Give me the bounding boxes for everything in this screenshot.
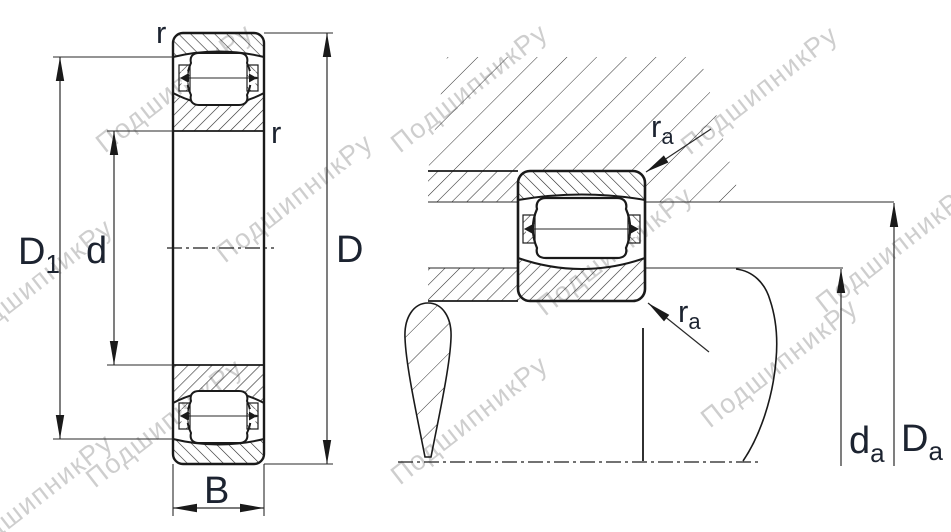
watermark: ПодшипникРу xyxy=(810,177,951,318)
arrowhead-down xyxy=(110,341,118,365)
left-view-bearing-section xyxy=(167,33,274,464)
arrowhead-up xyxy=(323,33,331,57)
arrowhead-ra-bottom xyxy=(645,300,669,322)
label-da-sub: a xyxy=(870,438,885,468)
label-D1-main: D xyxy=(18,231,45,273)
watermark: ПодшипникРу xyxy=(695,292,864,433)
cage-top-right xyxy=(247,65,258,91)
arrowhead-up xyxy=(56,57,64,81)
cage-right-view-right xyxy=(628,215,640,243)
label-Da-sub: a xyxy=(928,436,943,466)
label-da-main: d xyxy=(849,420,870,462)
housing-shoulder xyxy=(428,171,518,202)
label-D1: D1 xyxy=(18,231,60,279)
arrowhead-right xyxy=(240,504,264,512)
barrel-roller-top xyxy=(187,53,251,105)
label-ra-top-main: r xyxy=(651,109,661,144)
cage-bottom-left xyxy=(179,403,190,429)
cage-top-left xyxy=(179,65,190,91)
cage-bottom-right xyxy=(247,403,258,429)
label-ra-bottom-main: r xyxy=(678,294,688,329)
label-da: da xyxy=(849,420,885,468)
label-Da: Da xyxy=(901,418,943,466)
arrowhead-Da xyxy=(890,203,898,227)
arrowhead-left xyxy=(173,504,197,512)
label-d: d xyxy=(86,230,107,272)
arrowhead-down xyxy=(56,415,64,439)
barrel-roller-bottom xyxy=(187,391,251,443)
outer-ring-right xyxy=(518,171,645,200)
cage-right-view-left xyxy=(523,215,535,243)
label-ra-bottom-sub: a xyxy=(688,309,701,334)
label-ra-bottom: ra xyxy=(678,294,701,334)
arrowhead-down xyxy=(323,440,331,464)
label-B: B xyxy=(204,470,229,512)
technical-drawing-page: ПодшипникРу ПодшипникРу ПодшипникРу Подш… xyxy=(0,0,951,532)
label-D1-sub: 1 xyxy=(45,249,59,279)
label-Da-main: D xyxy=(901,418,928,460)
bearing-technical-drawing: ПодшипникРу ПодшипникРу ПодшипникРу Подш… xyxy=(0,0,951,532)
label-D: D xyxy=(336,229,363,271)
label-r-mid: r xyxy=(271,115,281,150)
label-r-top: r xyxy=(156,15,166,50)
label-ra-top-sub: a xyxy=(661,124,674,149)
shaft-shoulder xyxy=(428,268,518,301)
barrel-roller-right xyxy=(533,198,630,258)
